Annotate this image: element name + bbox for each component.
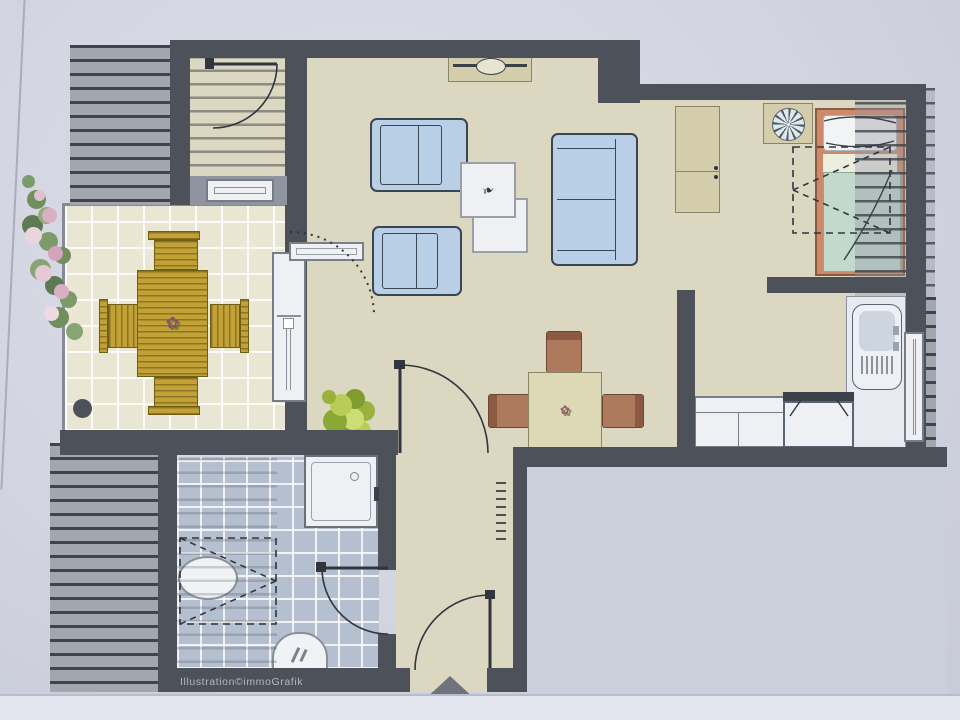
slope-marker-bathroom — [180, 538, 276, 624]
terrace-door-arc — [290, 232, 374, 316]
line-overlay — [0, 0, 960, 720]
wardrobe-handle-icon — [714, 166, 718, 170]
hall-door-arc — [400, 365, 488, 453]
sink-comb — [862, 356, 892, 374]
floor-plan-photo: ✿ ❧ ✿ — [0, 0, 960, 720]
slope-marker-bathroom-diagonals — [180, 538, 276, 624]
photo-bottom-edge — [0, 694, 960, 720]
entrance-door-arc — [415, 595, 490, 670]
stove-marks — [790, 400, 848, 416]
bathroom-door-arc — [322, 568, 388, 634]
slope-marker-bedroom-diagonals — [793, 147, 890, 233]
storage-door-arc — [213, 64, 277, 128]
slope-marker-bedroom — [793, 147, 890, 233]
watermark: Illustration©immoGrafik — [180, 676, 303, 688]
sink-tap-handle — [893, 342, 899, 351]
bathroom-door-hinge — [316, 562, 326, 572]
storage-door-hinge — [205, 58, 214, 69]
bed-sketch-lines — [824, 117, 896, 260]
wardrobe-handle-icon — [714, 175, 718, 179]
sink-tap-handle — [893, 326, 899, 335]
